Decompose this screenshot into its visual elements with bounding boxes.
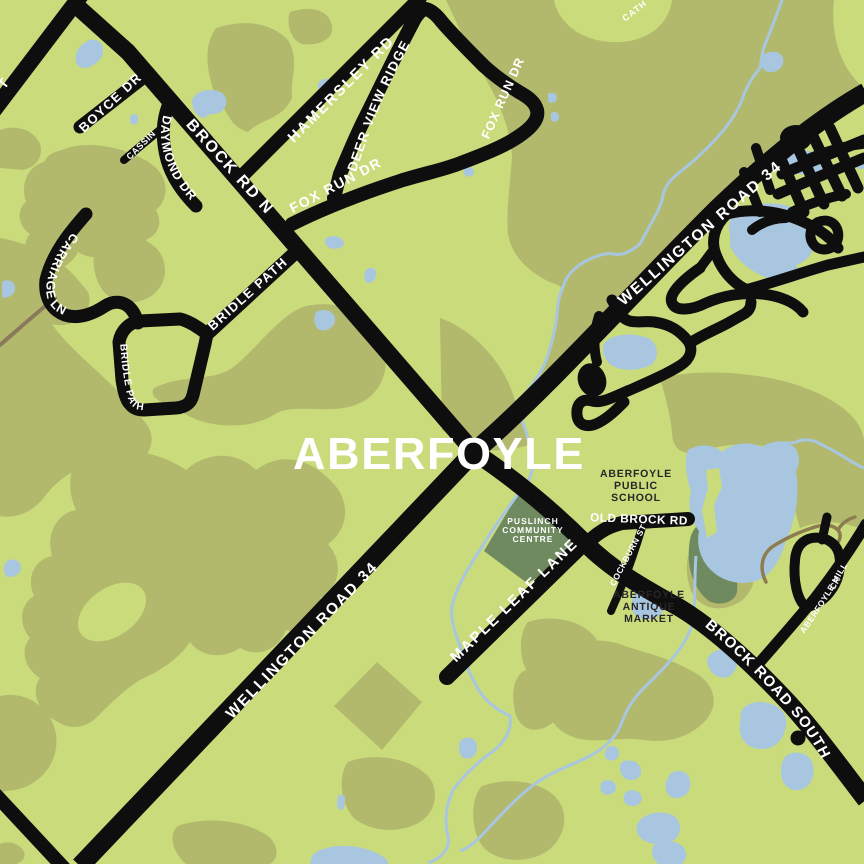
- svg-text:SCHOOL: SCHOOL: [611, 492, 661, 504]
- svg-text:ANTIQUE: ANTIQUE: [623, 601, 676, 613]
- svg-text:ABERFOYLE: ABERFOYLE: [600, 468, 672, 480]
- svg-text:ABERFOYLE: ABERFOYLE: [293, 428, 585, 479]
- svg-text:ABERFOYLE: ABERFOYLE: [613, 589, 685, 601]
- svg-text:PUBLIC: PUBLIC: [614, 480, 658, 492]
- svg-text:MARKET: MARKET: [624, 613, 674, 625]
- svg-text:CENTRE: CENTRE: [513, 534, 554, 544]
